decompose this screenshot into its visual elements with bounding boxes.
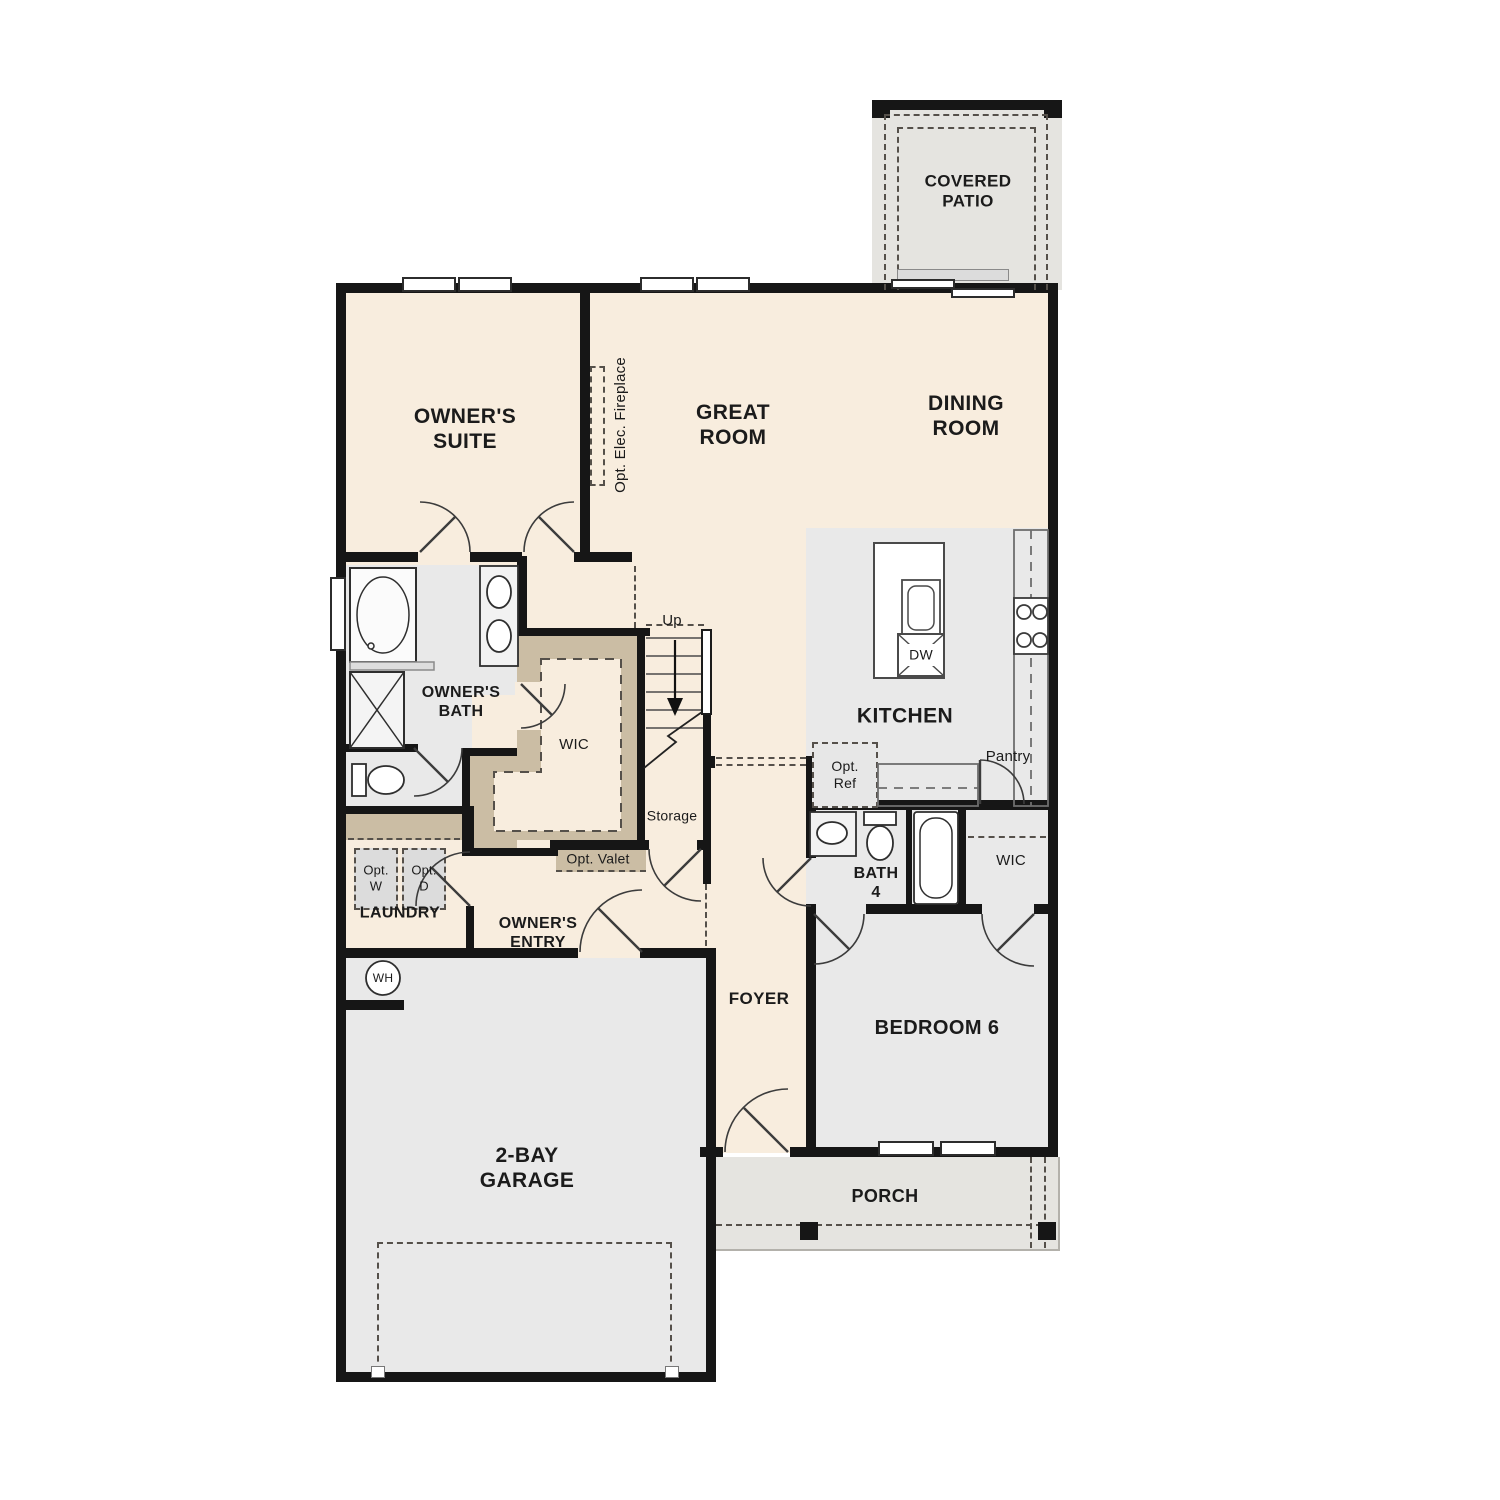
label-porch: PORCH [851,1186,918,1208]
label-foyer: FOYER [729,989,790,1009]
bath4-tub-icon [914,812,958,904]
label-opt-ref: Opt. Ref [831,758,858,792]
label-wh: WH [373,971,393,985]
door-arc [414,748,462,796]
door-arc [420,502,470,552]
label-opt-elec-fireplace: Opt. Elec. Fireplace [612,357,630,493]
staircase [644,630,711,768]
label-dining-room: DINING ROOM [928,391,1004,441]
label-wic-owners: WIC [559,736,589,754]
door-arc [580,890,642,952]
label-owners-bath: OWNER'S BATH [422,683,501,721]
shower-icon [350,672,404,748]
label-storage: Storage [647,808,697,825]
front-door-arc [725,1089,788,1152]
floor-plan: COVERED PATIO OWNER'S SUITE GREAT ROOM D… [0,0,1500,1500]
label-opt-d: Opt. D [411,862,436,893]
label-covered-patio: COVERED PATIO [925,172,1012,213]
double-vanity-icon [480,566,518,666]
bathtub-icon [350,568,434,670]
door-arc [524,502,574,552]
toilet-icon [352,764,404,796]
label-owners-entry: OWNER'S ENTRY [499,914,578,952]
label-up: Up [662,612,682,630]
label-dw: DW [909,647,933,664]
label-bedroom-6: BEDROOM 6 [875,1016,1000,1040]
door-arc [980,760,1024,804]
stair-direction-arrow [667,698,683,716]
label-wic-bedroom: WIC [996,852,1026,870]
door-arc [521,684,565,728]
fixtures-layer [0,0,1500,1500]
door-arc [763,858,811,906]
cooktop-icon [1014,598,1048,654]
label-owners-suite: OWNER'S SUITE [414,404,516,454]
label-garage: 2-BAY GARAGE [480,1143,575,1193]
bath4-sink-icon [810,812,856,856]
label-opt-w: Opt. W [363,862,388,893]
door-arc [982,914,1034,966]
label-laundry: LAUNDRY [360,903,440,922]
label-pantry: Pantry [986,748,1031,766]
door-arc [649,849,701,901]
label-kitchen: KITCHEN [857,703,953,728]
door-arc [814,914,864,964]
bath4-toilet-icon [864,812,896,860]
label-opt-valet: Opt. Valet [566,851,629,868]
kitchen-base-counter [878,764,978,806]
wic-dashed-interior [494,659,621,831]
label-bath-4: BATH 4 [854,864,899,902]
kitchen-sink-basin [908,586,934,630]
label-great-room: GREAT ROOM [696,400,770,450]
